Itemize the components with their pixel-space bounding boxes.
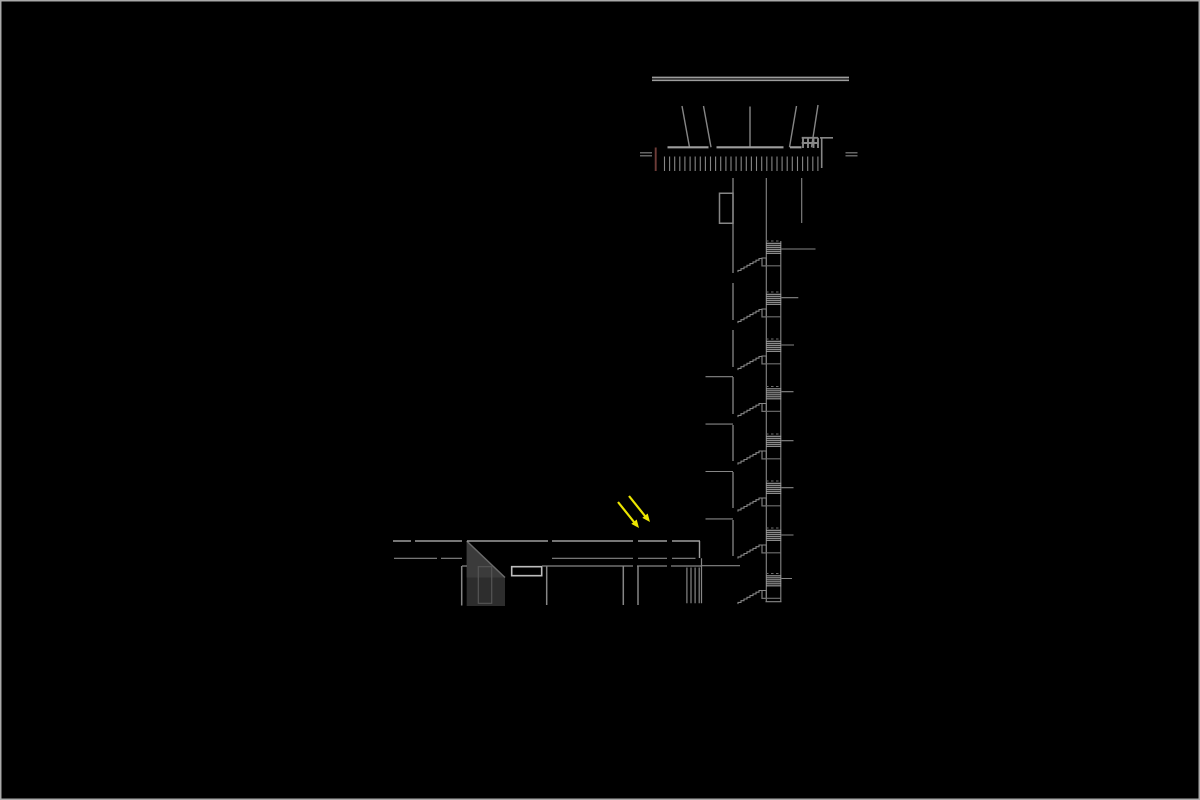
arrow-line-2 <box>629 496 645 516</box>
floor-lines-right <box>782 249 816 579</box>
stair-rung-stacks <box>766 243 781 586</box>
left-break-tick <box>640 153 652 156</box>
stair-landing-treads <box>762 266 781 599</box>
cab-bracket-support-lines <box>820 137 833 168</box>
cab-window-mullions <box>682 105 818 147</box>
upper-door-opening <box>720 193 734 223</box>
image-frame-border <box>1 1 1200 800</box>
landing-lines-left <box>706 377 734 519</box>
stair-newel-posts <box>762 258 766 599</box>
annex-roof-line <box>393 541 700 558</box>
tower-cab <box>640 78 858 172</box>
cab-equipment-bracket <box>802 138 818 148</box>
annex-building <box>393 541 740 606</box>
tower-shaft <box>706 178 816 604</box>
canvas <box>0 0 1200 800</box>
arrow-line-1 <box>618 502 634 522</box>
annotation-arrows <box>618 496 645 522</box>
stair-flight-zigzags <box>738 259 762 605</box>
tower-section-drawing <box>0 0 1200 800</box>
cab-roof-lines <box>652 78 849 81</box>
landing-dashed-edges <box>766 241 781 574</box>
white-duct-outline <box>512 567 542 576</box>
right-break-tick <box>846 153 858 156</box>
annex-tower-junction-wall <box>687 558 702 603</box>
cab-louver-ticks <box>665 157 818 172</box>
